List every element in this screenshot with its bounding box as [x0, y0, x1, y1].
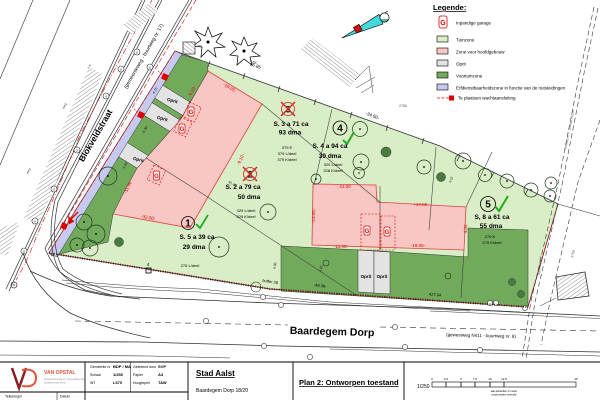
svg-text:41.00: 41.00 [339, 184, 351, 189]
svg-text:BDP / MA: BDP / MA [113, 364, 131, 369]
svg-text:329 K/deel: 329 K/deel [236, 214, 255, 219]
svg-text:279 K: 279 K [485, 234, 496, 239]
svg-text:G: G [385, 230, 390, 236]
svg-text:Schaal: Schaal [90, 373, 101, 377]
svg-text:12.5: 12.5 [501, 377, 507, 381]
svg-text:329 L/deel: 329 L/deel [324, 162, 343, 167]
svg-text:2.5: 2.5 [444, 377, 449, 381]
svg-text:S. 4 a 94 ca: S. 4 a 94 ca [312, 143, 347, 150]
svg-text:Voortuinzone: Voortuinzone [456, 74, 483, 79]
svg-text:7.5: 7.5 [473, 377, 478, 381]
svg-text:-11.00-: -11.00- [334, 244, 348, 249]
svg-text:G: G [189, 110, 194, 116]
svg-text:TAW: TAW [158, 380, 167, 385]
svg-text:10: 10 [488, 377, 492, 381]
svg-text:-19.05-: -19.05- [411, 243, 426, 248]
svg-text:379 L/deel: 379 L/deel [278, 151, 297, 156]
svg-text:5: 5 [485, 200, 491, 211]
svg-text:Legende:: Legende: [433, 3, 466, 12]
svg-text:279 K/deel: 279 K/deel [482, 240, 501, 245]
svg-text:Stad Aalst: Stad Aalst [196, 369, 235, 378]
svg-text:Datum: Datum [60, 395, 70, 399]
svg-text:Oprit: Oprit [377, 274, 388, 279]
svg-text:2756: 2756 [399, 104, 407, 108]
svg-text:alle afstanden in meter: alle afstanden in meter [491, 389, 517, 393]
svg-text:Inpandige garage: Inpandige garage [456, 21, 492, 26]
svg-text:tenzij anders vermeld: tenzij anders vermeld [492, 393, 517, 397]
svg-text:L670: L670 [113, 380, 123, 385]
svg-text:Baardegem Dorp: Baardegem Dorp [290, 325, 375, 339]
svg-text:Plan 2: Ontworpen toestand: Plan 2: Ontworpen toestand [299, 378, 399, 387]
svg-text:93 dma: 93 dma [279, 130, 302, 137]
svg-text:SVP: SVP [158, 364, 166, 369]
svg-text:G: G [180, 127, 185, 133]
svg-text:Te plaatsen wachtaansluiting: Te plaatsen wachtaansluiting [458, 96, 516, 101]
svg-text:379 K/deel: 379 K/deel [277, 157, 296, 162]
svg-text:VAN OPSTAL: VAN OPSTAL [44, 370, 75, 376]
svg-text:1: 1 [185, 219, 191, 230]
svg-text:studiebureau bvba: studiebureau bvba [44, 381, 66, 385]
svg-text:G: G [154, 174, 159, 180]
svg-text:S, 8 a 61 ca: S, 8 a 61 ca [474, 214, 509, 221]
svg-text:1/250: 1/250 [417, 384, 430, 390]
svg-text:S. 2 a 79 ca: S. 2 a 79 ca [225, 184, 260, 191]
svg-text:276 L/deel: 276 L/deel [181, 263, 200, 268]
svg-text:55 dma: 55 dma [480, 223, 503, 230]
svg-text:Tuinzone: Tuinzone [456, 38, 475, 43]
svg-text:4.00: 4.00 [463, 224, 468, 234]
svg-text:4: 4 [337, 124, 343, 135]
svg-text:-13.05-: -13.05- [311, 208, 317, 223]
svg-text:S. 5 a 39 ca: S. 5 a 39 ca [179, 234, 214, 241]
svg-text:Erfdienstbaarheidszone in func: Erfdienstbaarheidszone in functie van de… [456, 86, 566, 91]
svg-text:A3: A3 [158, 372, 164, 377]
svg-text:25: 25 [574, 377, 578, 381]
svg-text:G: G [440, 20, 446, 27]
svg-text:Zone voor hoofdgebouw: Zone voor hoofdgebouw [456, 50, 505, 55]
svg-text:328 K/deel: 328 K/deel [323, 168, 342, 173]
svg-text:Hoogtepeil: Hoogtepeil [133, 381, 150, 385]
svg-text:Papier: Papier [133, 373, 144, 377]
svg-text:399: 399 [197, 44, 202, 48]
svg-text:G: G [365, 229, 370, 235]
svg-text:S. 3 a 71 ca: S. 3 a 71 ca [273, 121, 308, 128]
svg-text:29 dma: 29 dma [183, 244, 206, 251]
svg-text:1/250: 1/250 [113, 372, 124, 377]
svg-text:Getekend door: Getekend door [133, 365, 157, 369]
svg-text:WT: WT [90, 381, 96, 385]
svg-text:+17.00-: +17.00- [413, 202, 429, 207]
svg-text:379 E: 379 E [282, 145, 293, 150]
svg-text:30 dma: 30 dma [319, 153, 342, 160]
svg-text:Oprit: Oprit [456, 62, 467, 67]
svg-text:Gemeente nr: Gemeente nr [90, 365, 111, 369]
svg-text:Tekeningnr: Tekeningnr [5, 395, 23, 399]
svg-text:landmeetkundig en vastgoedkund: landmeetkundig en vastgoedkundig [44, 377, 85, 381]
svg-text:Baardegem Dorp 18/20: Baardegem Dorp 18/20 [196, 388, 248, 394]
svg-text:50 dma: 50 dma [238, 194, 261, 201]
svg-text:Oprit: Oprit [361, 274, 372, 279]
svg-text:329 L/deel: 329 L/deel [237, 208, 256, 213]
